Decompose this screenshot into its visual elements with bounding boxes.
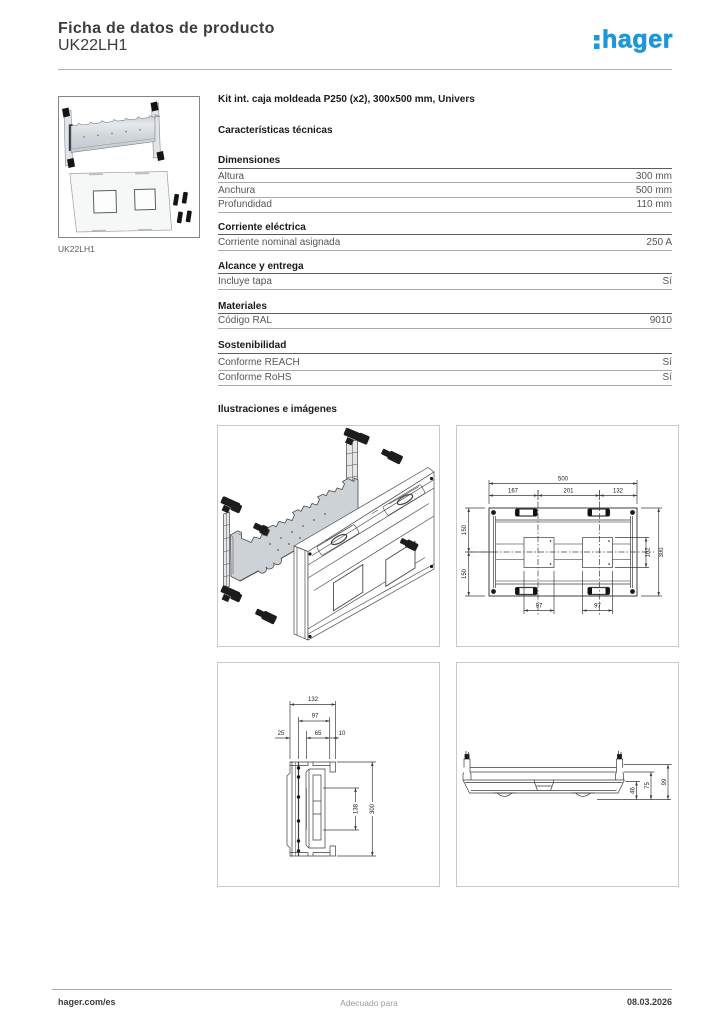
svg-text:65: 65 bbox=[315, 731, 322, 737]
svg-text:500: 500 bbox=[558, 477, 569, 483]
svg-text:46: 46 bbox=[631, 787, 637, 794]
svg-text:97: 97 bbox=[312, 714, 319, 720]
svg-text:75: 75 bbox=[645, 782, 651, 789]
svg-text:hager: hager bbox=[602, 26, 673, 54]
svg-text:10: 10 bbox=[339, 731, 346, 737]
svg-text:102: 102 bbox=[646, 547, 652, 558]
svg-text:150: 150 bbox=[462, 524, 468, 535]
svg-text:132: 132 bbox=[613, 489, 624, 495]
svg-text:300: 300 bbox=[659, 547, 665, 558]
svg-text:132: 132 bbox=[308, 697, 319, 703]
svg-text:167: 167 bbox=[508, 489, 519, 495]
svg-text:201: 201 bbox=[563, 489, 574, 495]
svg-text:97: 97 bbox=[536, 604, 543, 610]
svg-text:97: 97 bbox=[594, 604, 601, 610]
svg-text:99: 99 bbox=[662, 778, 668, 785]
svg-text:150: 150 bbox=[462, 568, 468, 579]
svg-text:300: 300 bbox=[370, 803, 376, 814]
svg-text:25: 25 bbox=[278, 731, 285, 737]
svg-text:138: 138 bbox=[353, 803, 359, 814]
